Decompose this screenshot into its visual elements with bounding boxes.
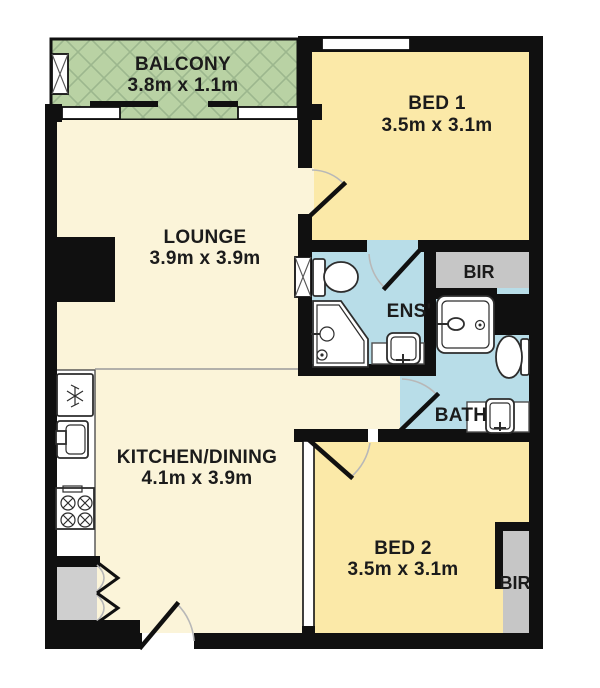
window-bed1 bbox=[322, 38, 410, 50]
column-marker-ens-wall bbox=[295, 257, 311, 297]
hall-closet bbox=[55, 567, 97, 620]
bir2-label: BIR bbox=[500, 573, 531, 593]
bath-label: BATH bbox=[435, 405, 488, 426]
hallway bbox=[298, 376, 400, 429]
floorplan: BALCONY 3.8m x 1.1m BED 1 3.5m x 3.1m LO… bbox=[0, 0, 600, 688]
bed2-dims: 3.5m x 3.1m bbox=[347, 559, 458, 580]
toilet-icon-bath bbox=[496, 336, 529, 378]
stud-wall-kitchen-bed2 bbox=[303, 441, 314, 629]
wall-closet-bottom bbox=[45, 620, 140, 649]
bed1-label: BED 1 bbox=[408, 93, 466, 114]
fridge-icon bbox=[57, 374, 93, 416]
wall-bottom-right bbox=[194, 633, 543, 649]
bed1-dims: 3.5m x 3.1m bbox=[381, 115, 492, 136]
wall-lounge-bed1-upper bbox=[298, 52, 312, 168]
slider-track-left bbox=[90, 101, 158, 107]
kitchen-fixtures bbox=[56, 374, 94, 529]
wall-balcony-corner-left bbox=[45, 104, 62, 122]
slider-track-right bbox=[208, 101, 238, 107]
wall-ens-top bbox=[298, 240, 367, 252]
wall-lounge-bed1-lower bbox=[298, 214, 312, 240]
wall-left bbox=[45, 104, 57, 649]
wall-right bbox=[529, 36, 543, 649]
wall-closet-top bbox=[53, 556, 100, 567]
lounge-dims: 3.9m x 3.9m bbox=[149, 248, 260, 269]
balcony-label: BALCONY bbox=[135, 54, 231, 75]
door-jamb-bed2 bbox=[368, 429, 377, 442]
sink-icon bbox=[56, 421, 88, 458]
stud-wall-cap-bottom bbox=[302, 626, 315, 638]
wall-bed2-top bbox=[308, 429, 370, 442]
lounge-label: LOUNGE bbox=[163, 227, 246, 248]
structural-column-block bbox=[45, 237, 115, 302]
wall-bir1-top bbox=[418, 240, 543, 252]
column-marker-balcony bbox=[52, 54, 68, 94]
bed1-door-gap bbox=[298, 168, 314, 214]
cooktop-icon bbox=[56, 486, 94, 529]
ens-label: ENS' bbox=[387, 301, 432, 322]
kitchen-label: KITCHEN/DINING bbox=[117, 447, 277, 468]
balcony-dims: 3.8m x 1.1m bbox=[127, 75, 238, 96]
bath-tub-icon bbox=[437, 296, 494, 353]
room-bed1 bbox=[312, 52, 529, 240]
bir1-label: BIR bbox=[464, 262, 495, 282]
sliding-door-panel-right bbox=[238, 107, 298, 119]
bed2-label: BED 2 bbox=[374, 538, 431, 559]
sliding-door-panel-left bbox=[62, 107, 120, 119]
kitchen-dims: 4.1m x 3.9m bbox=[141, 468, 252, 489]
wall-bath-pier bbox=[493, 294, 529, 335]
ens-door-gap bbox=[360, 240, 424, 252]
